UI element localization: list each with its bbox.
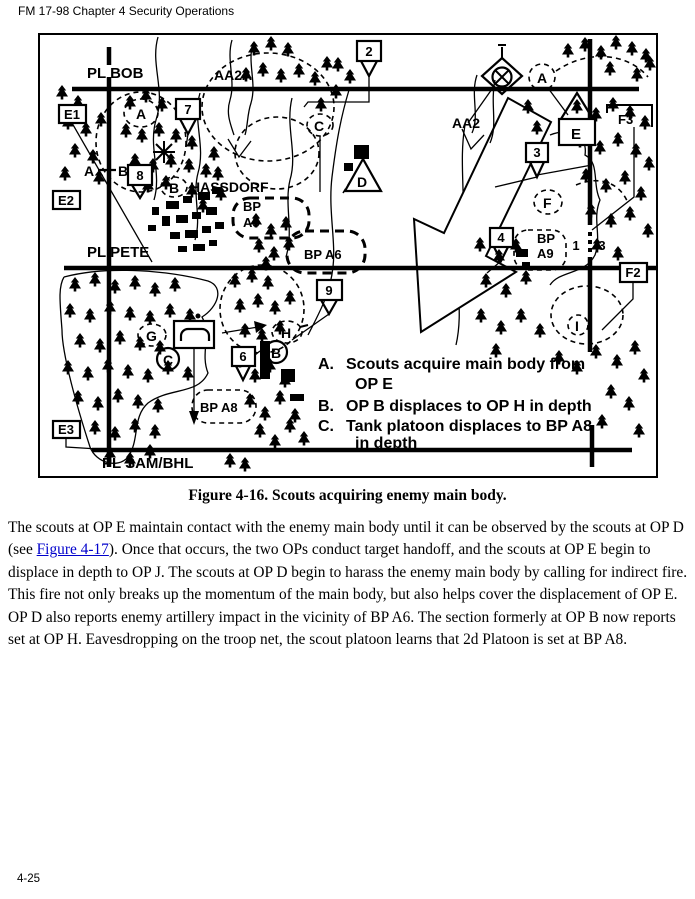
- aa2-label: AA2: [452, 115, 480, 131]
- svg-text:9: 9: [325, 283, 332, 298]
- aa2a-label: AA2A: [214, 67, 252, 83]
- svg-text:7: 7: [184, 102, 191, 117]
- svg-text:H: H: [281, 325, 291, 341]
- svg-text:C: C: [314, 118, 324, 134]
- legend-b-label: B.: [318, 398, 334, 415]
- svg-text:E3: E3: [58, 422, 74, 437]
- paragraph-text-end: ). Once that occurs, the two OPs conduct…: [8, 541, 687, 648]
- svg-text:2: 2: [365, 44, 372, 59]
- svg-text:G: G: [146, 328, 157, 344]
- svg-text:F2: F2: [625, 265, 640, 280]
- enemy-main-body-arrow: [414, 98, 551, 332]
- svg-text:3: 3: [533, 145, 540, 160]
- bp-a6-label: BP A6: [304, 247, 342, 262]
- svg-text:E1: E1: [64, 107, 80, 122]
- hassdorf-buildings: [148, 187, 224, 252]
- svg-text:6: 6: [239, 349, 246, 364]
- target-7: 7: [176, 99, 200, 147]
- tactical-map: 1 3 HASSDORF: [40, 35, 656, 476]
- hassdorf-label: HASSDORF: [190, 179, 269, 195]
- svg-text:D: D: [357, 174, 367, 190]
- op-f: F: [534, 190, 562, 214]
- svg-text:B: B: [118, 163, 128, 179]
- page-header: FM 17-98 Chapter 4 Security Operations: [18, 4, 234, 18]
- figure-caption: Figure 4-16. Scouts acquiring enemy main…: [0, 487, 695, 505]
- target-8: 8: [128, 165, 152, 198]
- legend-b-text: OP B displaces to OP H in depth: [346, 398, 592, 415]
- svg-text:E2: E2: [58, 193, 74, 208]
- svg-text:8: 8: [136, 168, 143, 183]
- svg-text:I: I: [575, 318, 579, 334]
- legend-c-label: C.: [318, 418, 334, 435]
- bp-a5-label-line1: BP: [243, 199, 261, 214]
- pl-bob-label: PL BOB: [87, 65, 144, 82]
- tank-displacement-arrow: [189, 348, 199, 425]
- op-i: I: [551, 286, 623, 344]
- bp-a9-label-line2: A9: [537, 246, 554, 261]
- legend-a-text2: OP E: [355, 376, 393, 393]
- artillery-impact-icon: [153, 141, 175, 163]
- boundary-unit-1: 1: [572, 238, 579, 253]
- svg-text:F3: F3: [618, 112, 633, 127]
- legend-a-text1: Scouts acquire main body from: [346, 356, 585, 373]
- svg-text:B: B: [271, 345, 281, 361]
- svg-text:A: A: [537, 70, 547, 86]
- legend-a-label: A.: [318, 356, 334, 373]
- svg-text:B: B: [169, 180, 179, 196]
- pl-pete-label: PL PETE: [87, 244, 149, 261]
- legend-c-text2: in depth: [355, 435, 417, 452]
- svg-text:C: C: [163, 352, 173, 368]
- svg-text:4: 4: [497, 230, 505, 245]
- map-legend: A. Scouts acquire main body from OP E B.…: [318, 356, 592, 452]
- svg-text:E: E: [571, 126, 581, 143]
- svg-text:F: F: [543, 195, 552, 211]
- figure-4-17-link[interactable]: Figure 4-17: [37, 541, 109, 558]
- target-e2: E2: [53, 191, 80, 209]
- legend-c-text1: Tank platoon displaces to BP A8: [346, 418, 592, 435]
- bp-a8-label: BP A8: [200, 400, 238, 415]
- body-paragraph: The scouts at OP E maintain contact with…: [8, 517, 692, 651]
- target-a-b: A B: [84, 163, 128, 179]
- svg-text:A: A: [84, 163, 94, 179]
- checkpoint-c: C: [157, 348, 179, 370]
- target-f2: F2: [602, 263, 647, 330]
- pl-sam-bhl-label: PL SAM/BHL: [102, 455, 193, 472]
- bp-a9-label-line1: BP: [537, 231, 555, 246]
- bp-a5-label-line2: A5: [243, 215, 260, 230]
- svg-text:A: A: [136, 106, 146, 122]
- figure-4-16-map: 1 3 HASSDORF: [38, 33, 658, 478]
- page-number: 4-25: [17, 873, 40, 885]
- target-9: 9: [292, 280, 342, 340]
- op-g: G: [138, 324, 166, 346]
